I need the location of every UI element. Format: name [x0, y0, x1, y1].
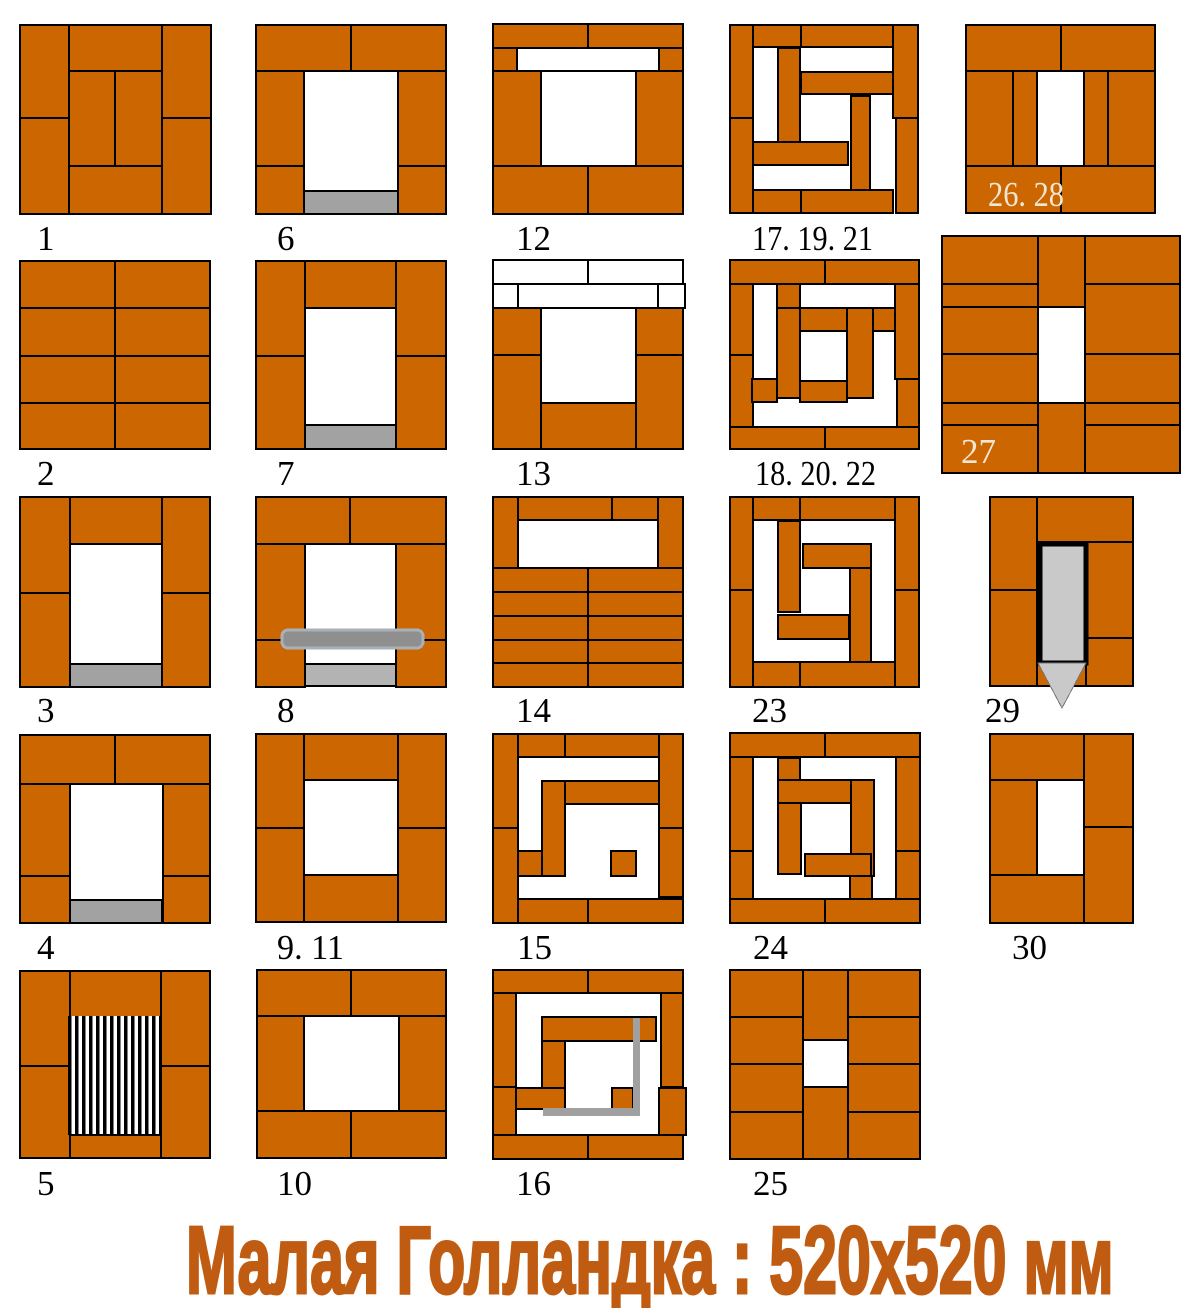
svg-text:5: 5	[37, 1164, 55, 1203]
svg-text:14: 14	[516, 691, 551, 730]
svg-text:27: 27	[961, 432, 996, 471]
svg-text:3: 3	[37, 691, 55, 730]
svg-text:2: 2	[37, 454, 55, 493]
svg-text:29: 29	[985, 691, 1020, 730]
svg-text:17. 19. 21: 17. 19. 21	[752, 219, 873, 258]
svg-text:6: 6	[277, 219, 295, 258]
svg-text:12: 12	[516, 219, 551, 258]
svg-text:18. 20. 22: 18. 20. 22	[755, 454, 876, 493]
svg-text:1: 1	[37, 219, 55, 258]
svg-text:7: 7	[277, 454, 295, 493]
svg-text:16: 16	[516, 1164, 551, 1203]
svg-text:8: 8	[277, 691, 295, 730]
svg-text:10: 10	[277, 1164, 312, 1203]
svg-text:26. 28: 26. 28	[988, 175, 1064, 214]
svg-text:24: 24	[753, 928, 788, 967]
svg-text:15: 15	[517, 928, 552, 967]
svg-text:23: 23	[752, 691, 787, 730]
svg-text:13: 13	[516, 454, 551, 493]
svg-text:Малая Голландка : 520х520 мм: Малая Голландка : 520х520 мм	[186, 1207, 1114, 1308]
svg-text:4: 4	[37, 928, 55, 967]
svg-text:9. 11: 9. 11	[277, 928, 344, 967]
svg-text:30: 30	[1012, 928, 1047, 967]
svg-text:25: 25	[753, 1164, 788, 1203]
